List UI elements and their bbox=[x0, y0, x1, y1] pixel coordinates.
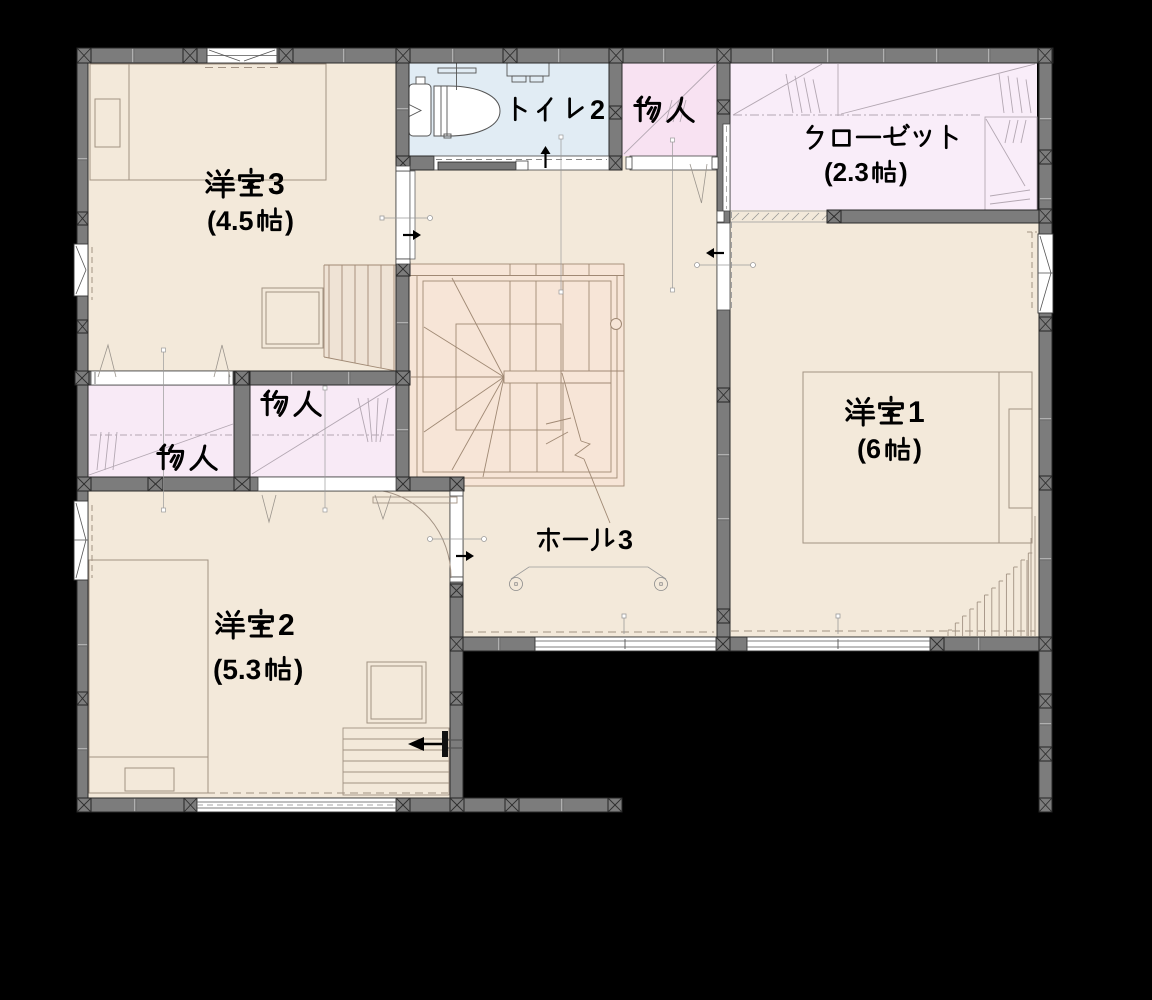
svg-text:): ) bbox=[899, 157, 908, 187]
svg-text:): ) bbox=[294, 654, 303, 685]
svg-text:(6: (6 bbox=[857, 434, 881, 464]
svg-text:3: 3 bbox=[618, 525, 633, 555]
svg-text:): ) bbox=[913, 434, 922, 464]
svg-text:1: 1 bbox=[908, 396, 925, 429]
svg-text:(4.5: (4.5 bbox=[207, 206, 254, 236]
svg-text:(5.3: (5.3 bbox=[213, 654, 261, 685]
svg-text:2: 2 bbox=[278, 609, 295, 642]
svg-text:(2.3: (2.3 bbox=[824, 157, 869, 187]
svg-text:2: 2 bbox=[590, 95, 605, 125]
svg-text:3: 3 bbox=[268, 168, 285, 201]
svg-text:): ) bbox=[285, 206, 294, 236]
